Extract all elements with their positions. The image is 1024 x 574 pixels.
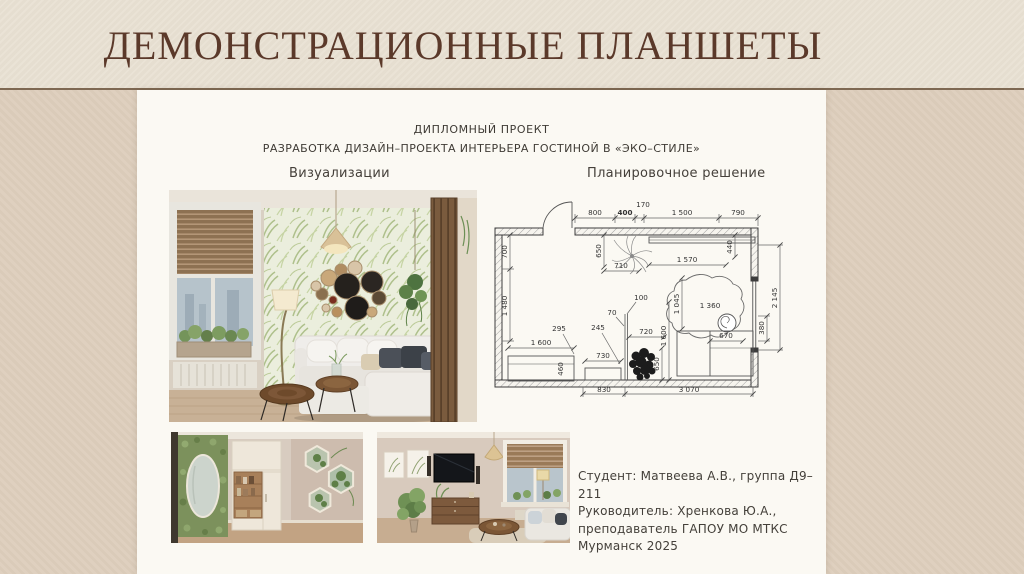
hallway-render bbox=[171, 432, 363, 543]
window-in-plan bbox=[751, 277, 758, 352]
living-room-render bbox=[169, 190, 477, 422]
dim-label: 830 bbox=[597, 385, 611, 394]
dim-label: 440 bbox=[725, 240, 734, 254]
dim-label: 720 bbox=[639, 327, 653, 336]
dim-label: 670 bbox=[719, 331, 733, 340]
white-corner-sofa bbox=[294, 336, 449, 422]
vase bbox=[469, 492, 474, 498]
dim-label: 1 480 bbox=[500, 295, 509, 316]
visualizations-label: Визуализации bbox=[289, 166, 390, 181]
ceiling bbox=[377, 432, 570, 438]
dim-label: 170 bbox=[636, 200, 650, 209]
beige-pillow bbox=[361, 354, 381, 370]
poster-header-line2: РАЗРАБОТКА ДИЗАЙН–ПРОЕКТА ИНТЕРЬЕРА ГОСТ… bbox=[137, 142, 826, 155]
tv-room-render bbox=[377, 432, 570, 543]
dim-label: 1 600 bbox=[531, 338, 552, 347]
dim-label: 650 bbox=[594, 244, 603, 258]
dim-label: 1 360 bbox=[700, 301, 721, 310]
dark-pillow bbox=[555, 513, 567, 525]
dim-label: 460 bbox=[556, 362, 565, 376]
dim-label: 2 145 bbox=[770, 288, 779, 309]
wardrobe-with-shelves bbox=[232, 441, 281, 530]
credits-student: Студент: Матвеева А.В., группа Д9–211 bbox=[578, 468, 823, 503]
windowsill bbox=[501, 502, 569, 507]
blinds bbox=[177, 210, 253, 274]
dim-label: 295 bbox=[552, 324, 566, 333]
dim-label: 100 bbox=[634, 293, 648, 302]
wood-slat-partition bbox=[431, 198, 477, 422]
diploma-poster: ДИПЛОМНЫЙ ПРОЕКТ РАЗРАБОТКА ДИЗАЙН–ПРОЕК… bbox=[137, 90, 826, 574]
speaker bbox=[427, 456, 431, 476]
wall-mounted-tv bbox=[427, 454, 480, 484]
shelf-top bbox=[649, 237, 755, 243]
dim-label: 790 bbox=[731, 208, 745, 217]
credits-institution: преподаватель ГАПОУ МО МТКС bbox=[578, 521, 823, 539]
dim-label: 800 bbox=[588, 208, 602, 217]
dim-label: 730 bbox=[596, 351, 610, 360]
bench-in-plan bbox=[585, 368, 621, 380]
botanical-frames bbox=[384, 450, 429, 478]
dim-label: 245 bbox=[591, 323, 605, 332]
dark-edge bbox=[171, 432, 178, 543]
living-room-render-image bbox=[169, 190, 477, 422]
sofa-in-plan bbox=[677, 331, 753, 376]
pouf bbox=[718, 314, 736, 332]
pillow bbox=[528, 511, 542, 524]
poster-header-line1: ДИПЛОМНЫЙ ПРОЕКТ bbox=[137, 123, 826, 136]
partition-line bbox=[625, 314, 628, 380]
dim-label: 400 bbox=[617, 208, 632, 217]
slide-title-band: ДЕМОНСТРАЦИОННЫЕ ПЛАНШЕТЫ bbox=[0, 0, 1024, 88]
credits-block: Студент: Матвеева А.В., группа Д9–211 Ру… bbox=[578, 468, 823, 556]
layout-plan-label: Планировочное решение bbox=[587, 166, 765, 181]
dim-label: 650 bbox=[652, 357, 661, 371]
dim-label: 380 bbox=[757, 321, 766, 335]
dim-label: 700 bbox=[500, 245, 509, 259]
door-swing bbox=[543, 202, 572, 228]
dim-label: 1 045 bbox=[672, 294, 681, 315]
presentation-slide: ДЕМОНСТРАЦИОННЫЕ ПЛАНШЕТЫ ДИПЛОМНЫЙ ПРОЕ… bbox=[0, 0, 1024, 574]
dim-label: 1 570 bbox=[677, 255, 698, 264]
dim-label: 70 bbox=[607, 308, 617, 317]
pillow bbox=[542, 509, 556, 523]
hallway-render-image bbox=[171, 432, 363, 543]
dim-label: 710 bbox=[614, 261, 628, 270]
credits-city-year: Мурманск 2025 bbox=[578, 538, 823, 556]
dark-pillow bbox=[379, 348, 403, 368]
credits-supervisor: Руководитель: Хренкова Ю.А., bbox=[578, 503, 823, 521]
sofa bbox=[525, 508, 570, 540]
radiator bbox=[173, 362, 257, 388]
poster-header: ДИПЛОМНЫЙ ПРОЕКТ РАЗРАБОТКА ДИЗАЙН–ПРОЕК… bbox=[137, 123, 826, 155]
speaker bbox=[476, 466, 480, 484]
tv-room-render-image bbox=[377, 432, 570, 543]
floor-plan-drawing: 800 400 170 1 500 790 700 1 480 650 710 … bbox=[486, 196, 822, 412]
dim-label: 1 500 bbox=[672, 208, 693, 217]
floor-plan: 800 400 170 1 500 790 700 1 480 650 710 … bbox=[486, 196, 822, 412]
dim-label: 1 600 bbox=[659, 325, 668, 346]
blinds bbox=[507, 444, 563, 468]
plant-framed-mirror bbox=[178, 435, 228, 537]
slide-title: ДЕМОНСТРАЦИОННЫЕ ПЛАНШЕТЫ bbox=[0, 0, 1024, 69]
dim-label: 3 070 bbox=[679, 385, 700, 394]
